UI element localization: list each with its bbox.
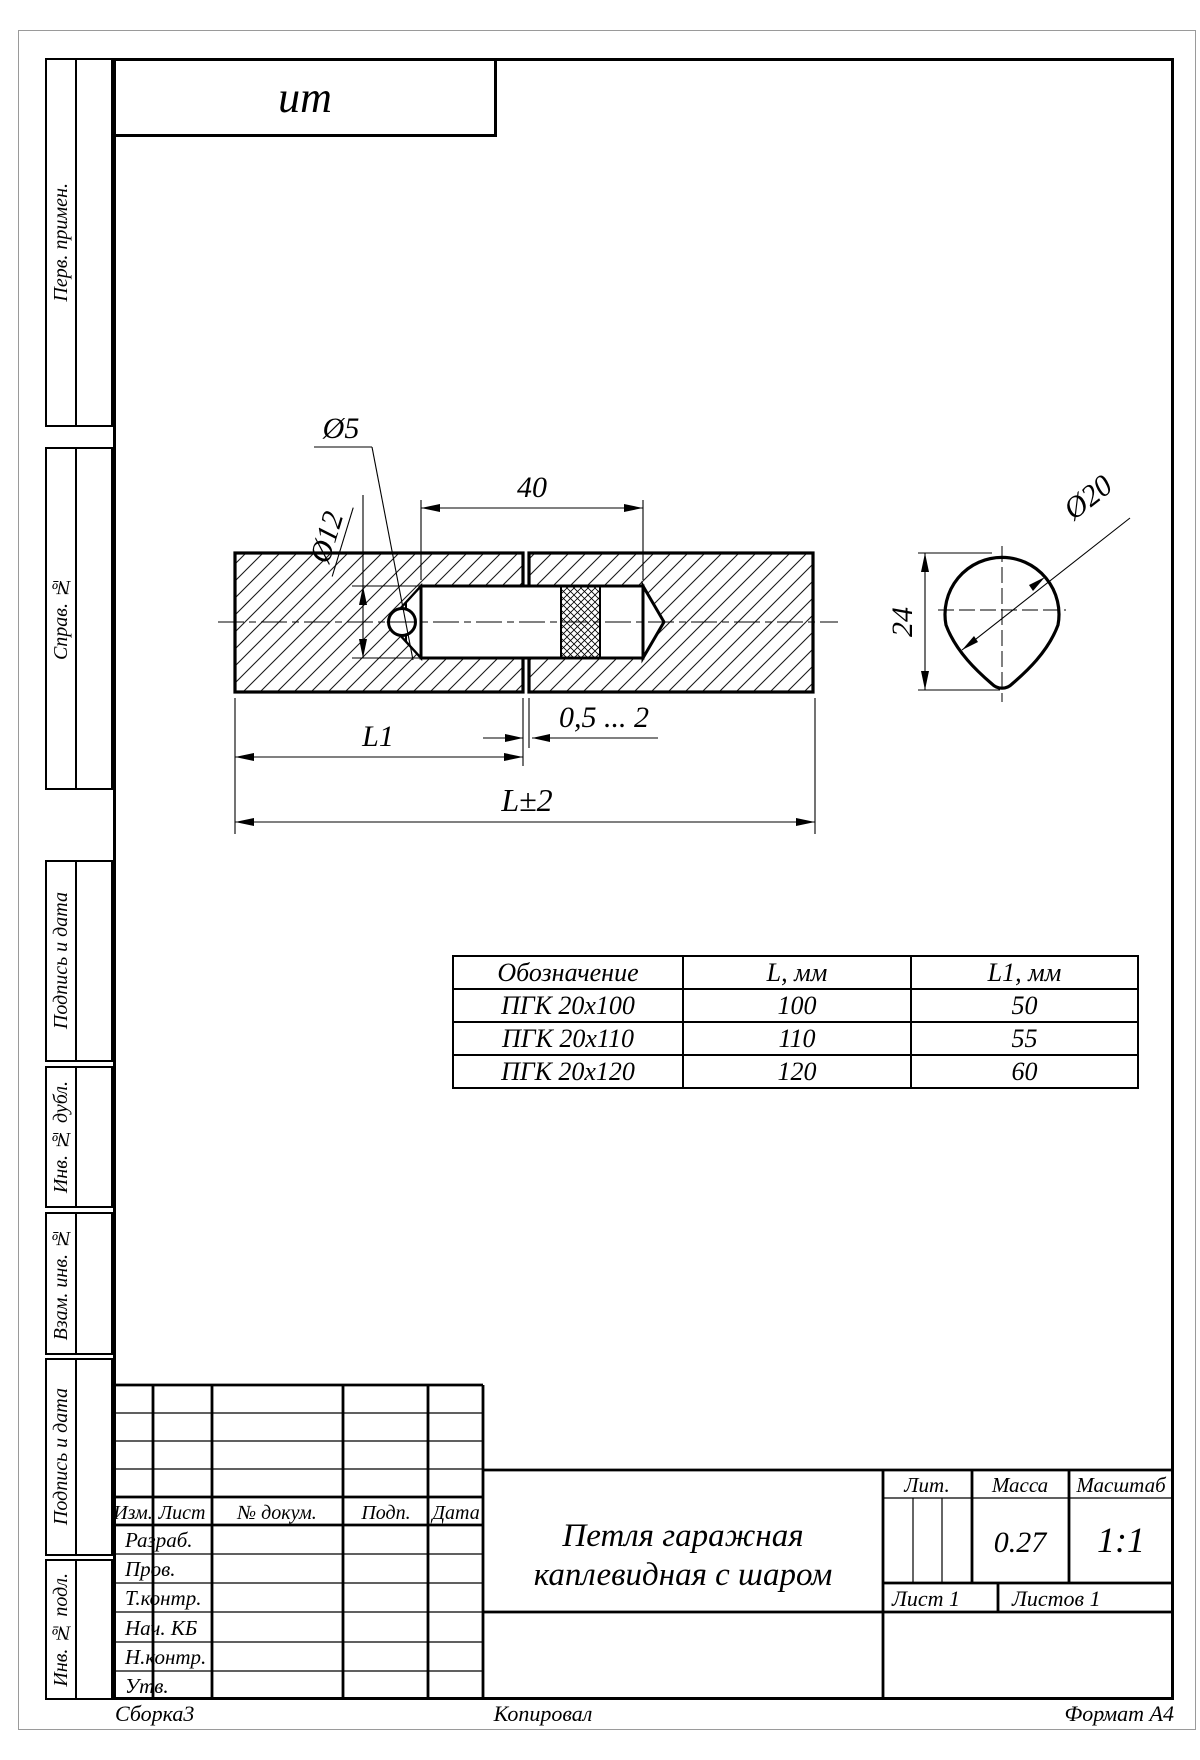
col-designation: Обозначение — [453, 956, 683, 989]
cell-designation: ПГК 20х120 — [453, 1055, 683, 1088]
svg-text:24: 24 — [886, 607, 919, 637]
cell-l1: 50 — [911, 989, 1138, 1022]
role-nachkb: Нач. КБ — [124, 1616, 197, 1640]
teardrop-side-view: 24 Ø20 — [886, 469, 1130, 702]
footer-copied-label: Копировал — [494, 1701, 593, 1727]
cell-l1: 60 — [911, 1055, 1138, 1088]
cell-l1: 55 — [911, 1022, 1138, 1055]
cell-designation: ПГК 20х110 — [453, 1022, 683, 1055]
change-col-izm: Изм. — [112, 1502, 153, 1524]
dim-gap-label: 0,5 ... 2 — [559, 701, 649, 734]
lit-label: Лит. — [903, 1473, 949, 1497]
role-prov: Пров. — [124, 1557, 176, 1581]
dim-overall-label: L±2 — [500, 782, 552, 818]
cell-l: 110 — [683, 1022, 911, 1055]
table-row: ПГК 20х110 110 55 — [453, 1022, 1138, 1055]
dim-24-label: 24 — [886, 607, 919, 637]
drawing-canvas: 40 Ø12 Ø5 L1 — [0, 0, 1200, 1760]
table-row: ПГК 20х100 100 50 — [453, 989, 1138, 1022]
size-table-header-row: Обозначение L, мм L1, мм — [453, 956, 1138, 989]
col-l1: L1, мм — [911, 956, 1138, 989]
role-tkontr: Т.контр. — [125, 1586, 201, 1610]
change-col-dokum: № докум. — [236, 1502, 316, 1524]
table-row: ПГК 20х120 120 60 — [453, 1055, 1138, 1088]
dim-d5-label: Ø5 — [322, 412, 360, 445]
part-title-line1: Петля гаражная — [561, 1518, 803, 1554]
cell-l: 100 — [683, 989, 911, 1022]
scale-value: 1:1 — [1097, 1520, 1145, 1560]
size-table: Обозначение L, мм L1, мм ПГК 20х100 100 … — [452, 955, 1139, 1089]
main-section-view: 40 Ø12 Ø5 L1 — [218, 412, 838, 834]
cell-designation: ПГК 20х100 — [453, 989, 683, 1022]
dim-l1 — [235, 698, 523, 834]
change-col-list: Лист — [158, 1502, 206, 1524]
cell-l: 120 — [683, 1055, 911, 1088]
footer-assembly-note: Сборка3 — [115, 1701, 194, 1727]
change-col-data: Дата — [430, 1502, 479, 1524]
role-nkontr: Н.контр. — [124, 1645, 206, 1669]
svg-text:Ø20: Ø20 — [1057, 469, 1119, 527]
title-block-texts: Изм. Лист № докум. Подп. Дата Разраб. Пр… — [112, 1473, 1167, 1698]
dim-l1-label: L1 — [361, 720, 394, 753]
sheets-total: Листов 1 — [1011, 1586, 1101, 1611]
mass-value: 0.27 — [994, 1526, 1049, 1559]
sheet-number: Лист 1 — [891, 1586, 960, 1611]
part-title-line2: каплевидная с шаром — [534, 1557, 833, 1593]
role-utv: Утв. — [125, 1674, 169, 1698]
change-col-podp: Подп. — [360, 1502, 410, 1524]
mass-label: Масса — [991, 1473, 1048, 1497]
engineering-drawing-page: { "stamp": { "designation": "ит" }, "mar… — [0, 0, 1200, 1760]
scale-label: Масштаб — [1075, 1473, 1167, 1497]
dim-40-label: 40 — [517, 471, 547, 504]
col-l: L, мм — [683, 956, 911, 989]
dim-d20-label: Ø20 — [1057, 469, 1119, 527]
role-razrab: Разраб. — [124, 1528, 193, 1552]
footer-format-label: Формат А4 — [1065, 1701, 1174, 1727]
